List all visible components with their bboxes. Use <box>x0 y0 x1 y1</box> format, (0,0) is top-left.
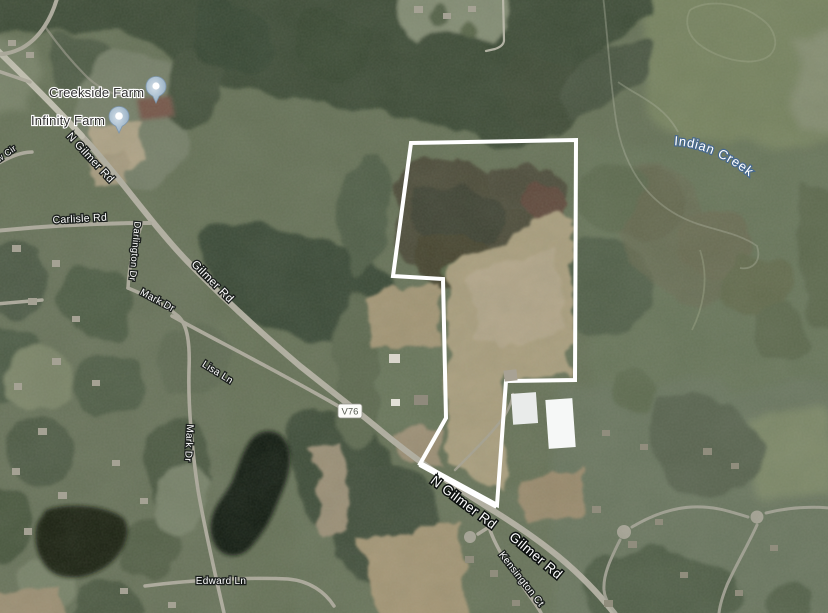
svg-text:Infinity Farm: Infinity Farm <box>31 113 105 128</box>
svg-text:V76: V76 <box>342 407 359 418</box>
svg-text:Mark Dr: Mark Dr <box>182 424 195 463</box>
svg-text:Creekside Farm: Creekside Farm <box>49 85 144 100</box>
svg-text:Edward Ln: Edward Ln <box>196 576 247 587</box>
